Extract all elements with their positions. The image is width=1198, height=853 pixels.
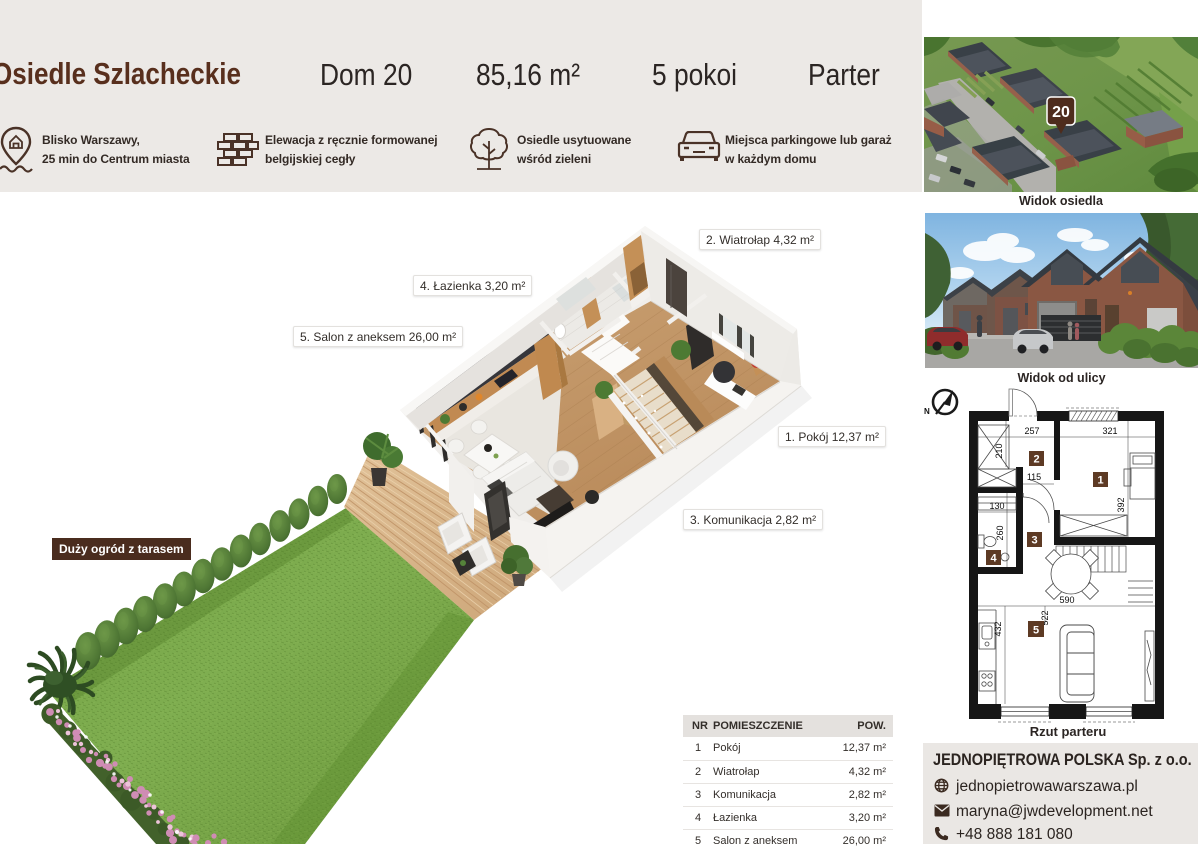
- svg-text:4: 4: [990, 553, 997, 565]
- svg-text:20: 20: [1052, 104, 1070, 121]
- svg-text:257: 257: [1024, 426, 1039, 436]
- svg-text:210: 210: [994, 443, 1004, 458]
- svg-text:590: 590: [1059, 595, 1074, 605]
- svg-text:130: 130: [989, 501, 1004, 511]
- svg-text:432: 432: [993, 621, 1003, 636]
- svg-text:392: 392: [1116, 497, 1126, 512]
- svg-text:N: N: [924, 407, 930, 416]
- svg-text:321: 321: [1102, 426, 1117, 436]
- svg-text:115: 115: [1027, 472, 1041, 482]
- svg-text:1: 1: [1097, 475, 1103, 487]
- svg-text:3: 3: [1031, 535, 1037, 547]
- svg-text:2: 2: [1033, 454, 1039, 466]
- svg-text:260: 260: [995, 525, 1005, 540]
- svg-text:5: 5: [1033, 625, 1039, 637]
